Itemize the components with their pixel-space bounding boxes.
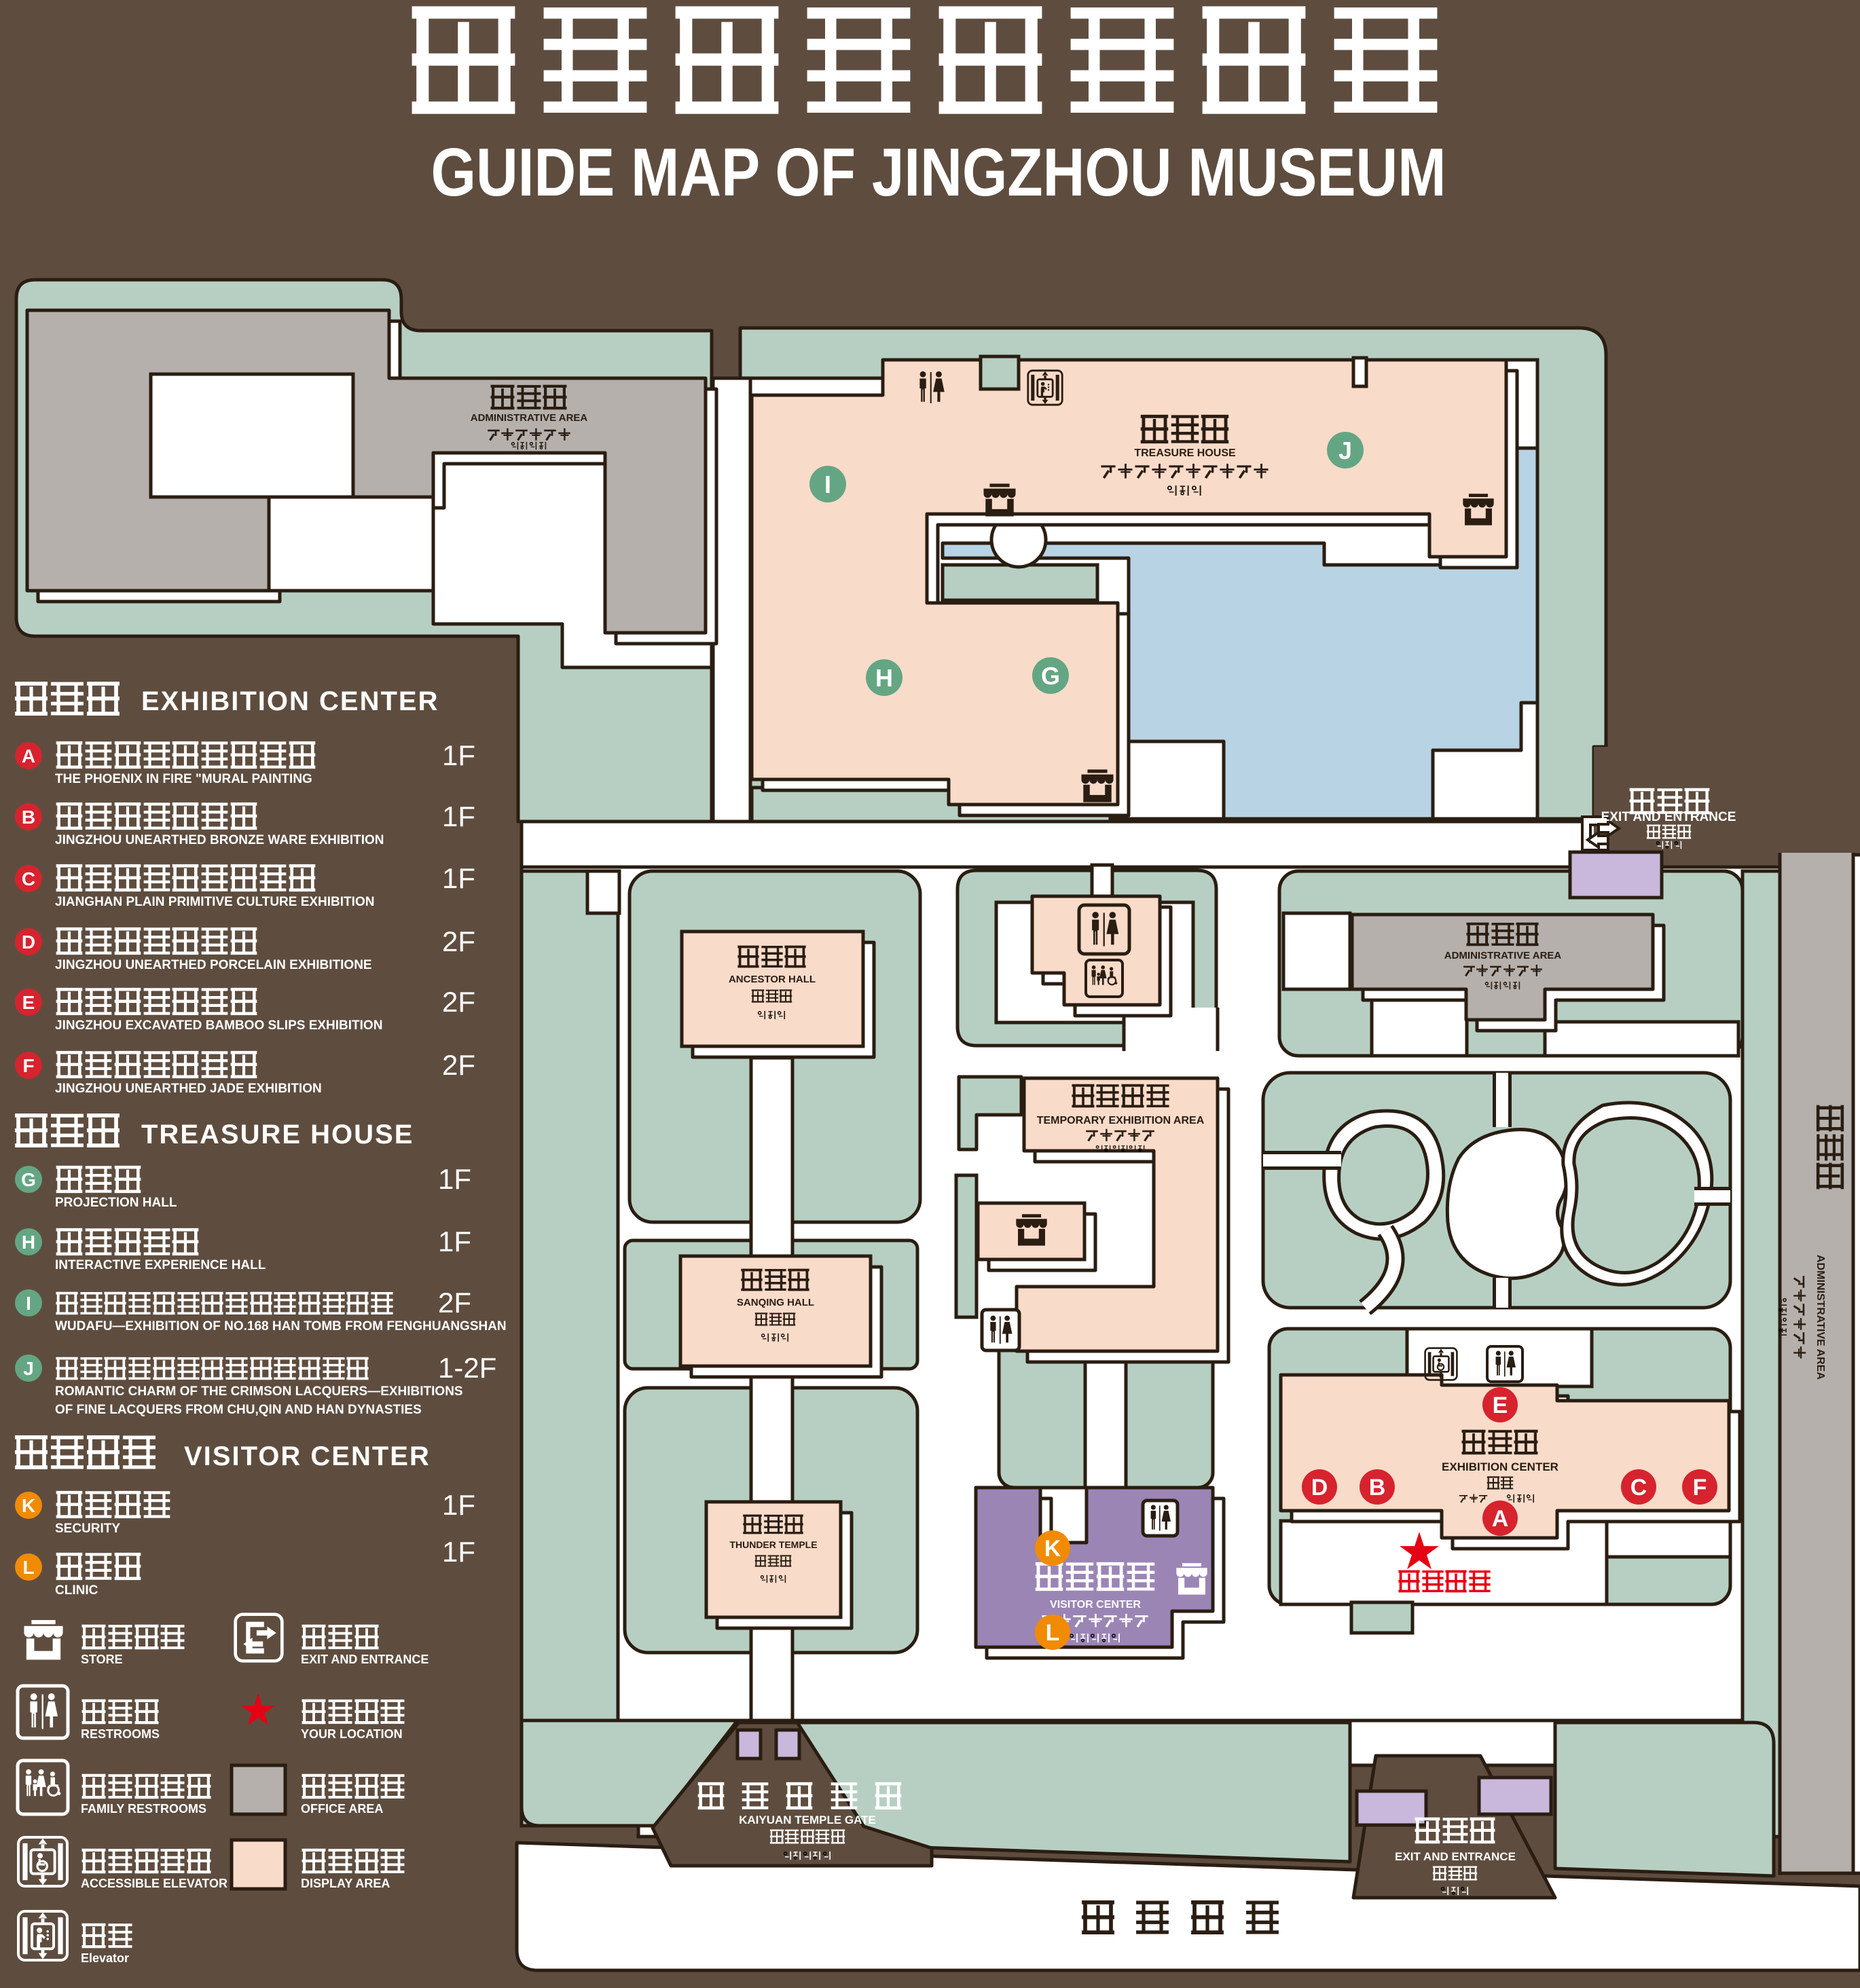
svg-text:L: L [1046, 1620, 1060, 1646]
svg-text:JINGZHOU EXCAVATED BAMBOO SLIP: JINGZHOU EXCAVATED BAMBOO SLIPS EXHIBITI… [55, 1018, 382, 1033]
svg-text:1F: 1F [442, 1489, 475, 1521]
svg-text:OFFICE AREA: OFFICE AREA [301, 1802, 383, 1816]
svg-text:D: D [22, 932, 35, 953]
svg-text:1-2F: 1-2F [438, 1352, 496, 1384]
svg-text:SECURITY: SECURITY [55, 1522, 120, 1536]
svg-text:J: J [1338, 437, 1352, 464]
svg-text:1F: 1F [442, 800, 475, 832]
svg-text:F: F [22, 1055, 34, 1076]
svg-text:THE PHOENIX IN FIRE "MURAL PAI: THE PHOENIX IN FIRE "MURAL PAINTING [55, 772, 312, 786]
svg-text:INTERACTIVE EXPERIENCE HALL: INTERACTIVE EXPERIENCE HALL [55, 1258, 266, 1272]
svg-text:2F: 2F [442, 986, 475, 1018]
svg-text:EXHIBITION CENTER: EXHIBITION CENTER [1442, 1460, 1558, 1473]
svg-text:E: E [1493, 1393, 1508, 1418]
svg-text:C: C [1630, 1475, 1647, 1501]
svg-text:2F: 2F [442, 925, 475, 957]
svg-text:JINGZHOU UNEARTHED BRONZE WARE: JINGZHOU UNEARTHED BRONZE WARE EXHIBITIO… [55, 833, 384, 847]
svg-text:2F: 2F [442, 1049, 475, 1081]
svg-text:YOUR LOCATION: YOUR LOCATION [301, 1727, 403, 1741]
svg-text:TREASURE HOUSE: TREASURE HOUSE [1134, 447, 1236, 459]
svg-text:GUIDE MAP OF JINGZHOU MUSEUM: GUIDE MAP OF JINGZHOU MUSEUM [431, 134, 1446, 210]
svg-text:B: B [22, 807, 35, 828]
svg-text:JINGZHOU UNEARTHED JADE EXHIBI: JINGZHOU UNEARTHED JADE EXHIBITION [55, 1082, 322, 1096]
svg-text:I: I [26, 1293, 31, 1314]
svg-text:ACCESSIBLE ELEVATOR: ACCESSIBLE ELEVATOR [81, 1877, 227, 1890]
svg-text:I: I [824, 471, 831, 498]
svg-text:ROMANTIC CHARM OF THE CRIMSON: ROMANTIC CHARM OF THE CRIMSON LACQUERS—E… [55, 1384, 463, 1399]
svg-text:EXIT AND ENTRANCE: EXIT AND ENTRANCE [301, 1653, 428, 1666]
svg-text:B: B [1369, 1475, 1386, 1501]
svg-text:H: H [875, 664, 893, 692]
svg-text:FAMILY RESTROOMS: FAMILY RESTROOMS [81, 1802, 206, 1816]
svg-text:ADMINISTRATIVE AREA: ADMINISTRATIVE AREA [1444, 950, 1562, 961]
svg-text:G: G [1041, 662, 1060, 690]
svg-text:G: G [21, 1169, 36, 1190]
svg-text:JIANGHAN PLAIN PRIMITIVE CULTU: JIANGHAN PLAIN PRIMITIVE CULTURE EXHIBIT… [55, 895, 374, 909]
svg-text:CLINIC: CLINIC [55, 1583, 98, 1598]
svg-text:ADMINISTRATIVE AREA: ADMINISTRATIVE AREA [1815, 1255, 1826, 1380]
svg-text:1F: 1F [442, 1536, 475, 1568]
svg-text:JINGZHOU UNEARTHED PORCELAIN E: JINGZHOU UNEARTHED PORCELAIN EXHIBITIONE [55, 958, 372, 972]
svg-text:DISPLAY AREA: DISPLAY AREA [301, 1877, 390, 1890]
svg-text:VISITOR CENTER: VISITOR CENTER [1050, 1599, 1141, 1610]
svg-text:THUNDER TEMPLE: THUNDER TEMPLE [729, 1539, 817, 1550]
svg-text:KAIYUAN TEMPLE GATE: KAIYUAN TEMPLE GATE [739, 1814, 876, 1826]
svg-text:SANQING HALL: SANQING HALL [737, 1297, 814, 1308]
svg-text:PROJECTION HALL: PROJECTION HALL [55, 1196, 177, 1210]
svg-text:RESTROOMS: RESTROOMS [81, 1727, 160, 1741]
svg-text:1F: 1F [442, 739, 475, 771]
svg-text:C: C [22, 868, 35, 889]
svg-text:L: L [22, 1557, 34, 1578]
svg-text:2F: 2F [438, 1287, 471, 1319]
svg-text:ANCESTOR HALL: ANCESTOR HALL [729, 974, 816, 985]
svg-text:EXIT AND ENTRANCE: EXIT AND ENTRANCE [1395, 1850, 1516, 1863]
svg-text:OF FINE LACQUERS FROM CHU,QIN: OF FINE LACQUERS FROM CHU,QIN AND HAN DY… [55, 1403, 422, 1417]
svg-text:E: E [22, 992, 35, 1013]
svg-text:1F: 1F [438, 1226, 471, 1257]
svg-text:ADMINISTRATIVE AREA: ADMINISTRATIVE AREA [471, 412, 588, 424]
svg-text:D: D [1311, 1475, 1328, 1501]
svg-text:K: K [22, 1495, 35, 1516]
svg-text:WUDAFU—EXHIBITION OF NO.168 HA: WUDAFU—EXHIBITION OF NO.168 HAN TOMB FRO… [55, 1319, 507, 1333]
svg-text:F: F [1693, 1475, 1707, 1501]
svg-text:1F: 1F [442, 862, 475, 894]
svg-text:H: H [22, 1232, 35, 1253]
svg-text:A: A [22, 745, 35, 767]
svg-text:TREASURE HOUSE: TREASURE HOUSE [141, 1120, 414, 1149]
svg-text:A: A [1492, 1506, 1509, 1532]
svg-text:TEMPORARY EXHIBITION AREA: TEMPORARY EXHIBITION AREA [1037, 1115, 1205, 1126]
svg-text:J: J [23, 1358, 34, 1379]
svg-text:EXIT AND ENTRANCE: EXIT AND ENTRANCE [1601, 810, 1736, 824]
svg-text:K: K [1044, 1536, 1061, 1562]
svg-text:1F: 1F [438, 1163, 471, 1195]
svg-text:STORE: STORE [81, 1653, 123, 1666]
svg-text:Elevator: Elevator [81, 1951, 129, 1965]
svg-text:VISITOR CENTER: VISITOR CENTER [184, 1441, 431, 1471]
svg-text:EXHIBITION CENTER: EXHIBITION CENTER [141, 686, 439, 716]
